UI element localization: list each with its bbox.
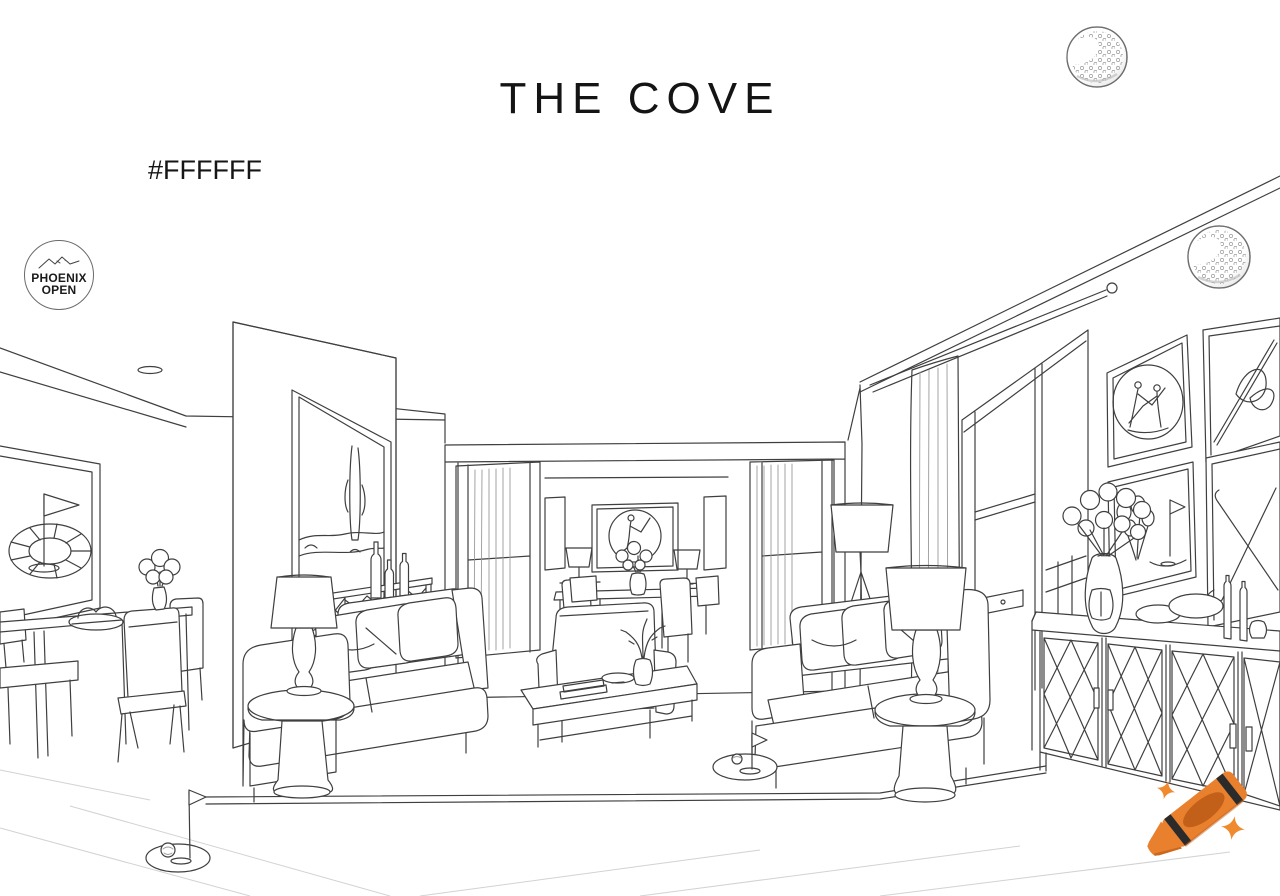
badge-line2: OPEN: [42, 284, 77, 296]
left-dining-area: [0, 446, 203, 762]
hex-code-label: #FFFFFF: [148, 155, 262, 186]
golf-ball-icon: [1183, 226, 1250, 288]
page-title: THE COVE: [0, 74, 1280, 124]
sideboard: [1032, 612, 1280, 810]
coloring-page: THE COVE #FFFFFF PHOENIX OPEN: [0, 0, 1280, 896]
phoenix-open-badge: PHOENIX OPEN: [24, 240, 94, 310]
sparkle-icon: [1219, 814, 1246, 841]
mountain-icon: [37, 254, 81, 270]
line-art-scene: [0, 0, 1280, 896]
crayon-icon: [1140, 769, 1250, 865]
golf-gallery-frames: [1107, 318, 1280, 627]
